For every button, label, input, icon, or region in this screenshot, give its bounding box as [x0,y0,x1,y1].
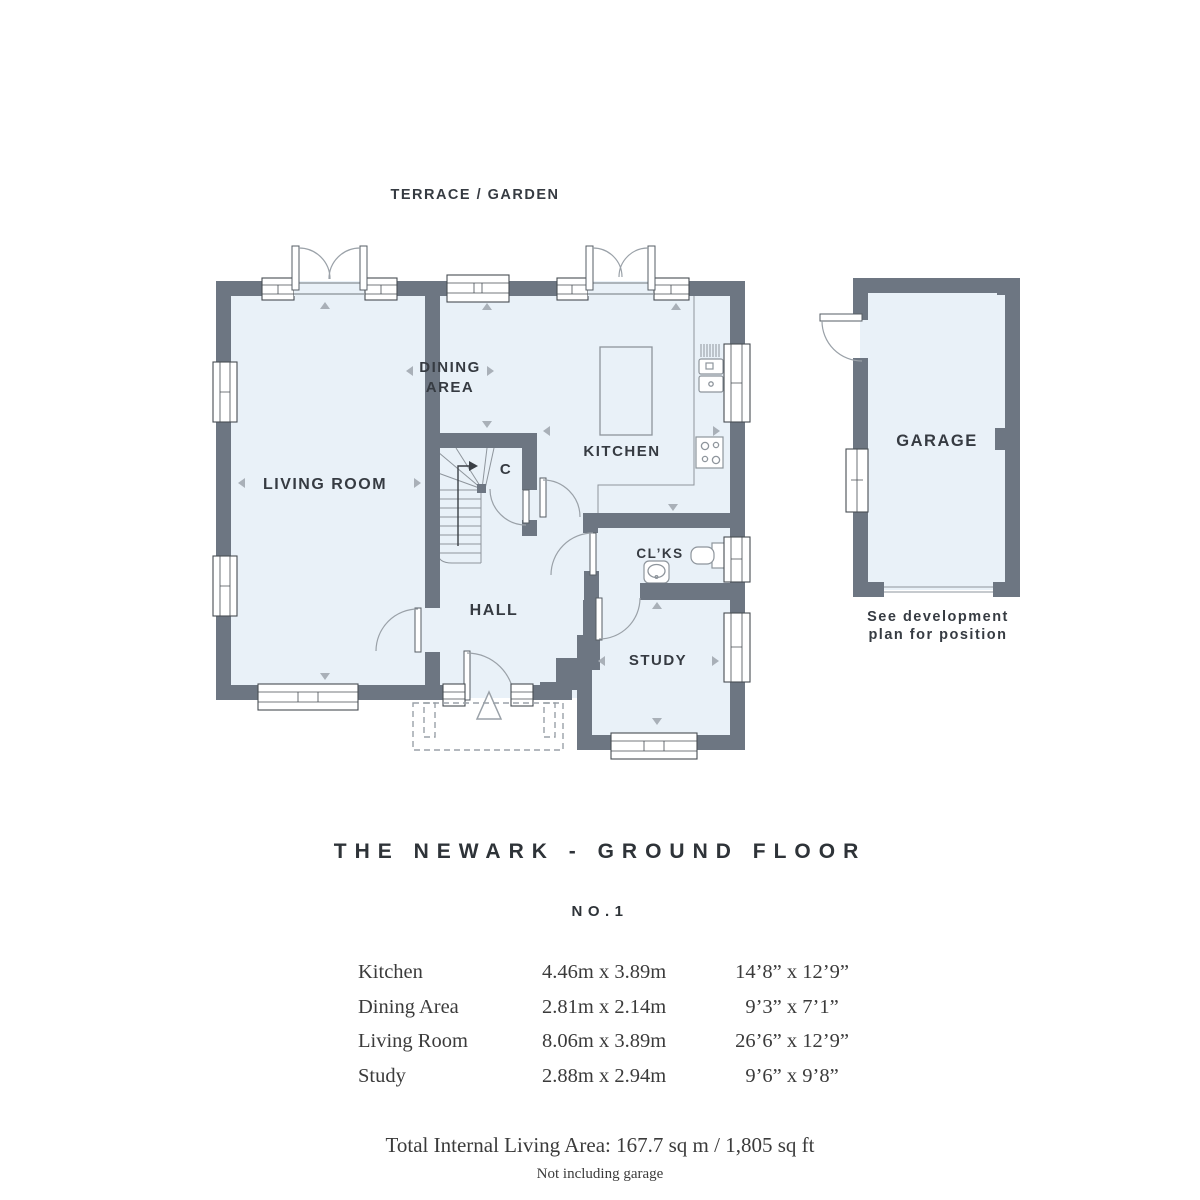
window [213,556,237,616]
floorplan-page: TERRACE / GARDEN LIVING ROOM DINING AREA… [0,0,1200,1200]
dining-area-label-line1: DINING [419,359,481,376]
window [262,278,294,300]
window [557,278,588,300]
table-cell-metric: 2.81m x 2.14m [542,990,727,1025]
living-room-label: LIVING ROOM [263,476,387,493]
page-title: THE NEWARK - GROUND FLOOR [0,840,1200,864]
table-cell-imperial: 14’8” x 12’9” [727,955,857,990]
garage-label: GARAGE [896,432,977,450]
window [447,275,509,302]
table-cell-room: Study [358,1059,542,1094]
table-cell-room: Dining Area [358,990,542,1025]
french-door-kitchen [586,246,655,296]
window [258,684,358,710]
garage-note-line1: See development [867,609,1009,625]
dimensions-table: Kitchen 4.46m x 3.89m 14’8” x 12’9” Dini… [358,955,857,1093]
table-cell-room: Living Room [358,1024,542,1059]
window [724,613,750,682]
plot-number: NO.1 [0,903,1200,920]
dining-area-label-line2: AREA [426,379,475,396]
kitchen-label: KITCHEN [583,443,660,460]
garage-note-line2: plan for position [868,627,1007,643]
cupboard-label: C [500,461,512,478]
window [846,449,868,512]
newel-post [477,484,486,493]
window [365,278,397,300]
table-cell-imperial: 9’3” x 7’1” [727,990,857,1025]
hall-label: HALL [470,602,519,619]
hob [696,437,723,468]
window [611,733,697,759]
table-cell-imperial: 9’6” x 9’8” [727,1059,857,1094]
table-cell-imperial: 26’6” x 12’9” [727,1024,857,1059]
window [213,362,237,422]
study-label: STUDY [629,652,687,669]
table-cell-room: Kitchen [358,955,542,990]
cloakroom-label: CL’KS [636,546,683,561]
total-area-text: Total Internal Living Area: 167.7 sq m /… [0,1133,1200,1158]
window [724,344,750,422]
window [654,278,689,300]
basin [644,561,669,583]
toilet [691,543,725,568]
terrace-garden-label: TERRACE / GARDEN [390,187,559,203]
french-door-living [292,246,367,296]
garage-exclusion-note: Not including garage [0,1166,1200,1183]
table-cell-metric: 2.88m x 2.94m [542,1059,727,1094]
window [724,537,750,582]
table-cell-metric: 8.06m x 3.89m [542,1024,727,1059]
table-cell-metric: 4.46m x 3.89m [542,955,727,990]
door-garage [820,314,862,361]
